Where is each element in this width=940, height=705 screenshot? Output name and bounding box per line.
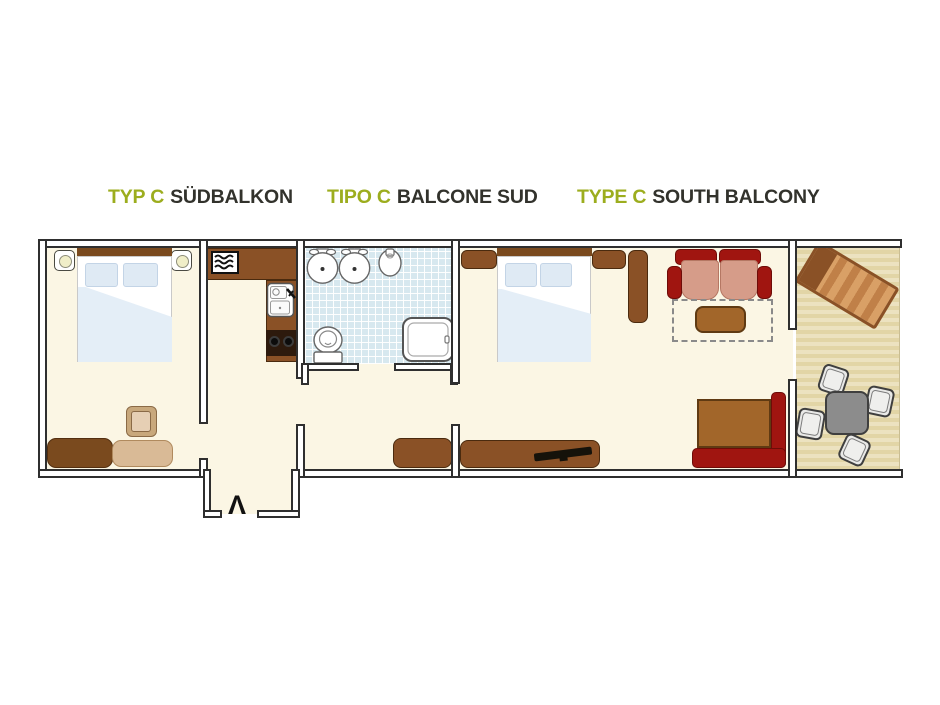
nightstand: [171, 250, 192, 271]
bed-headboard: [77, 248, 172, 256]
burner: [269, 336, 280, 347]
sofa-section-brown: [47, 438, 113, 468]
pillow: [85, 263, 118, 287]
corner-bench-back: [692, 448, 786, 468]
radiator-icon: [211, 251, 239, 274]
wall-left: [38, 239, 47, 478]
lamp-icon: [176, 255, 189, 268]
wardrobe: [628, 250, 648, 323]
burner: [283, 336, 294, 347]
sofa-seat-cushion: [720, 260, 758, 300]
armchair-seat: [131, 411, 151, 432]
heading-english-type: TYPE C: [577, 186, 646, 208]
bed-headboard: [497, 248, 592, 256]
blanket: [78, 287, 172, 362]
chair-seat: [799, 412, 822, 437]
heading-english: TYPE CSOUTH BALCONY: [577, 186, 820, 209]
wall-bath-bottom-left: [301, 363, 359, 371]
coffee-table: [695, 306, 746, 333]
blanket: [498, 289, 591, 362]
shower-door-handle: [445, 336, 449, 343]
floor-plan-page: TYP CSÜDBALKON TIPO CBALCONE SUD TYPE CS…: [0, 0, 940, 705]
heading-italian-type: TIPO C: [327, 186, 391, 208]
balcony-chair: [795, 407, 827, 441]
pillow: [540, 263, 572, 287]
wall-kitchen-bath: [296, 239, 305, 379]
wall-bath-left-stub: [301, 363, 309, 385]
chair-seat: [821, 368, 845, 393]
sofa-section-tan: [112, 440, 173, 467]
wall-bottom-left: [38, 469, 211, 478]
wall-balcony-upper: [788, 239, 797, 330]
pillow: [123, 263, 158, 287]
wall-top: [38, 239, 902, 248]
armchair: [126, 406, 157, 437]
heading-german-type: TYP C: [108, 186, 164, 208]
chair-seat: [842, 437, 868, 463]
stove-icon: [266, 330, 297, 356]
heading-italian: TIPO CBALCONE SUD: [327, 186, 538, 209]
heading-english-name: SOUTH BALCONY: [652, 186, 819, 208]
toilet-tank: [314, 352, 342, 363]
wall-bath-livingroom: [451, 239, 460, 384]
sofa-armrest: [667, 266, 682, 299]
wall-bedroom-upper: [199, 239, 208, 424]
sofa-seat-cushion: [681, 260, 719, 300]
nightstand-wood: [592, 250, 626, 269]
wall-vestibule-right-lip: [257, 510, 300, 518]
entrance-vestibule-floor: [207, 469, 295, 514]
heading-german: TYP CSÜDBALKON: [108, 186, 293, 209]
double-bed: [497, 256, 591, 362]
wall-balcony-lower: [788, 379, 797, 478]
sofa-armrest: [757, 266, 772, 299]
nightstand: [54, 250, 75, 271]
hall-bench: [393, 438, 452, 468]
wall-livingroom-stub: [451, 424, 460, 478]
corner-bench-seat: [697, 399, 771, 448]
bathroom-fixtures: [305, 248, 451, 364]
wall-bath-bottom-right: [394, 363, 458, 371]
pillow: [505, 263, 537, 287]
kitchen-sink: [266, 282, 298, 319]
nightstand-wood: [461, 250, 497, 269]
balcony-table: [825, 391, 869, 435]
wall-vestibule-left-lip: [203, 510, 222, 518]
chair-seat: [868, 389, 891, 413]
wall-bottom-right: [291, 469, 903, 478]
radiator-waves: [213, 253, 237, 272]
heading-italian-name: BALCONE SUD: [397, 186, 538, 208]
heading-german-name: SÜDBALKON: [170, 186, 293, 208]
lamp-icon: [59, 255, 72, 268]
double-bed: [77, 256, 172, 362]
entrance-direction-icon: Λ: [228, 492, 246, 519]
